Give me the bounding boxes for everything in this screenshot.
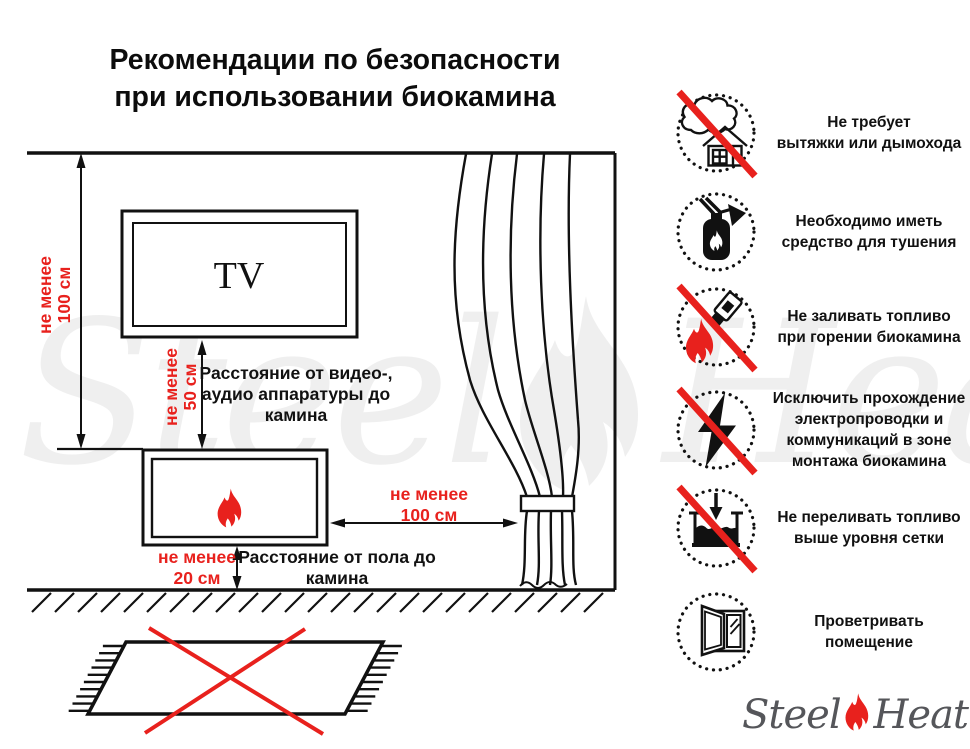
title-line-2: при использовании биокамина [10, 79, 660, 116]
rule-no-wiring: Исключить прохождение электропроводки и … [670, 384, 968, 476]
dim-tv-line2: 50 см [180, 363, 200, 410]
title-line-1: Рекомендации по безопасности [10, 42, 660, 79]
page-title: Рекомендации по безопасности при использ… [10, 42, 660, 116]
svg-text:Расстояние от видео-,: Расстояние от видео-, [200, 363, 393, 383]
rule-ventilate: Проветривать помещение [670, 586, 968, 678]
tv: TV [122, 211, 357, 337]
label-floor-distance: Расстояние от пола до камина [238, 547, 436, 588]
open-window-icon [702, 606, 744, 655]
dimension-wall-100cm: не менее 100 см [35, 153, 86, 449]
dim-curtain-line1: не менее [390, 484, 468, 504]
dimension-tv-50cm: не менее 50 см [161, 340, 207, 449]
tv-label: TV [214, 255, 265, 297]
floor-hatching [32, 593, 603, 612]
dim-curtain-line2: 100 см [401, 505, 458, 525]
no-refuel-while-burning-icon [670, 281, 762, 373]
infographic-root: Steel Heat не менее 100 см TV [0, 0, 970, 749]
svg-text:камина: камина [265, 405, 328, 425]
rule-no-refuel: Не заливать топливо при горении биокамин… [670, 281, 968, 373]
fuel-tank-icon [689, 493, 743, 545]
dim-tv-line1: не менее [161, 348, 181, 426]
no-wiring-icon [670, 384, 762, 476]
rule-text: Исключить прохождение электропроводки и … [770, 388, 968, 472]
rule-extinguisher: Необходимо иметь средство для тушения [670, 186, 968, 278]
svg-text:Расстояние от пола до: Расстояние от пола до [238, 547, 436, 567]
dim-floor-line1: не менее [158, 547, 236, 567]
biofireplace [143, 450, 327, 545]
svg-text:аудио аппаратуры до: аудио аппаратуры до [202, 384, 390, 404]
dim-wall-line1: не менее [35, 256, 55, 334]
rule-text: Необходимо иметь средство для тушения [770, 211, 968, 253]
logo-heat-text: Heat [874, 692, 968, 738]
logo-flame-icon [843, 689, 872, 735]
logo-steel-text: Steel [742, 692, 841, 738]
dim-floor-line2: 20 см [173, 568, 220, 588]
dim-wall-line2: 100 см [54, 267, 74, 324]
extinguisher-icon [670, 186, 762, 278]
dimension-curtain-100cm: не менее 100 см [330, 484, 518, 528]
rule-text: Не переливать топливо выше уровня сетки [770, 507, 968, 549]
no-overfill-icon [670, 482, 762, 574]
rule-text: Проветривать помещение [770, 611, 968, 653]
rule-no-overfill: Не переливать топливо выше уровня сетки [670, 482, 968, 574]
flame-icon [686, 319, 713, 364]
fire-extinguisher-body [700, 198, 746, 260]
label-av-distance: Расстояние от видео-, аудио аппаратуры д… [200, 363, 393, 425]
svg-text:камина: камина [306, 568, 369, 588]
rug-crossed [69, 628, 402, 734]
steelheat-logo: Steel Heat [742, 686, 968, 744]
dimension-floor-20cm: не менее 20 см [158, 546, 241, 590]
ventilate-icon [670, 586, 762, 678]
red-slash-icon [679, 389, 755, 473]
rule-no-chimney: Не требует вытяжки или дымохода [670, 87, 968, 179]
curtain-tie [521, 496, 574, 511]
no-chimney-icon [670, 87, 762, 179]
rule-text: Не заливать топливо при горении биокамин… [770, 306, 968, 348]
rule-text: Не требует вытяжки или дымохода [770, 112, 968, 154]
